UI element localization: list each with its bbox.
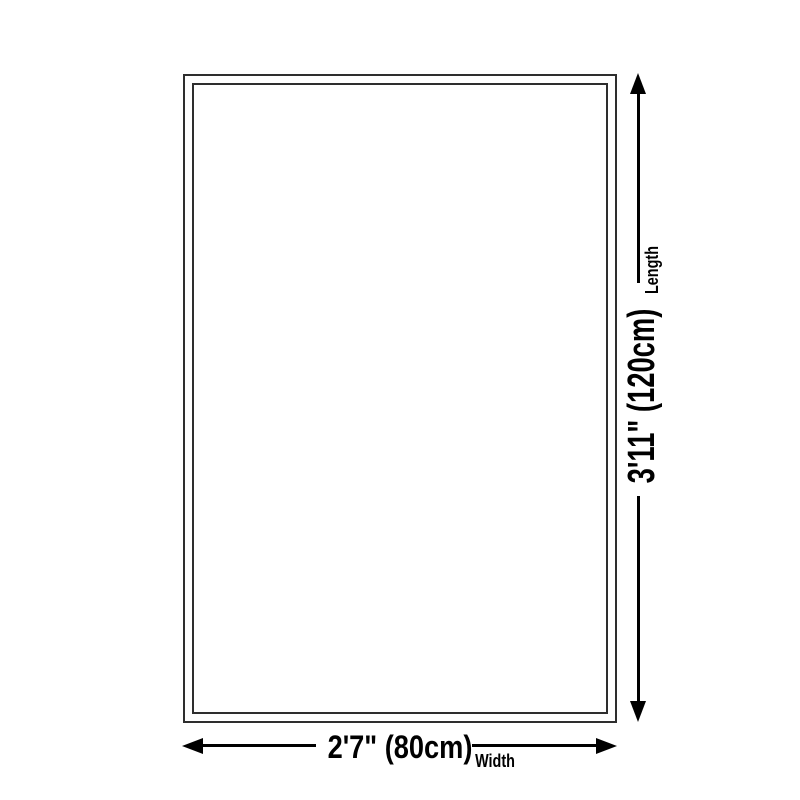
- arrow-down-icon: [630, 701, 646, 722]
- length-dimension-line-top: [637, 90, 640, 283]
- length-dimension-line-bottom: [637, 496, 640, 706]
- width-value: 2'7" (80cm): [328, 731, 473, 763]
- width-dimension-line-right: [472, 744, 599, 747]
- length-value: 3'11" (120cm): [623, 309, 661, 484]
- product-outline-inner: [192, 83, 608, 714]
- width-label: Width: [475, 752, 515, 770]
- width-dimension-line-left: [199, 744, 316, 747]
- length-label: Length: [643, 246, 661, 294]
- product-outline-outer: [183, 74, 617, 723]
- arrow-right-icon: [596, 738, 617, 754]
- dimension-diagram: 3'11" (120cm) Length 2'7" (80cm) Width: [0, 0, 800, 800]
